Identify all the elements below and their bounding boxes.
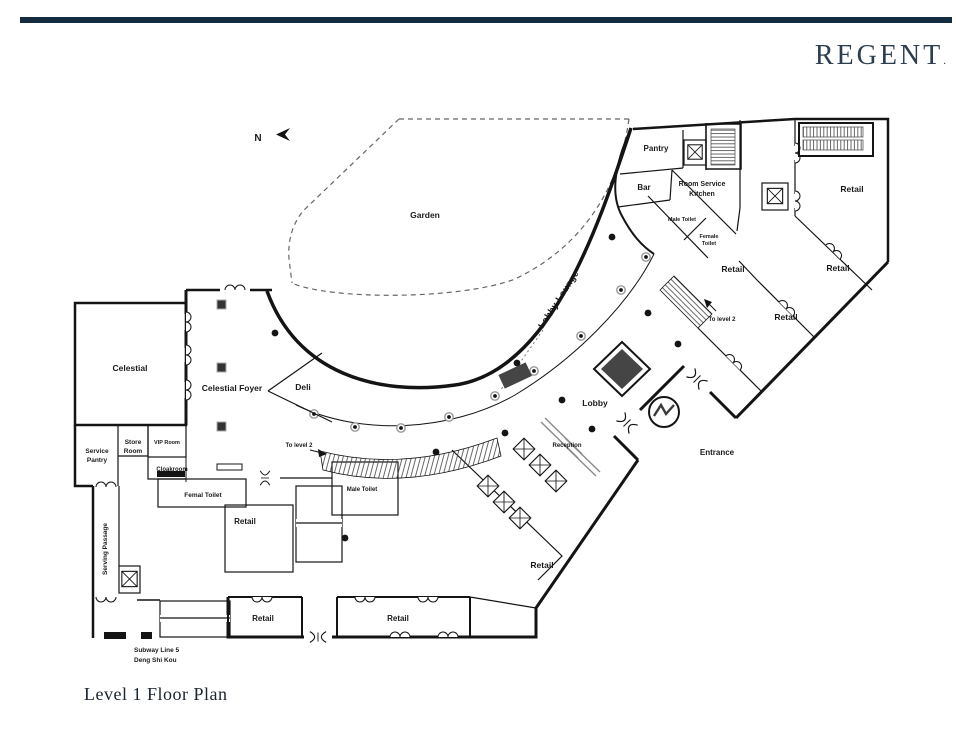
garden-wall-arc	[267, 128, 631, 388]
label-vip-room: VIP Room	[154, 440, 180, 446]
label-room-service-kitchen-2: Kitchen	[689, 191, 715, 198]
label-store-room-2: Room	[124, 448, 143, 455]
label-to-level2-right: To level 2	[709, 317, 737, 323]
label-celestial-foyer: Celestial Foyer	[202, 383, 263, 393]
label-retail-bottom-1: Retail	[252, 614, 274, 623]
elevator-icon-top	[684, 140, 706, 165]
stairs-icon-top	[706, 124, 741, 169]
room-labels: Garden Pantry Bar Room Service Kitchen M…	[85, 144, 863, 664]
label-bar: Bar	[637, 183, 650, 192]
label-lobby-lounge: Lobby Lounge	[536, 269, 581, 330]
label-subway-1: Subway Line 5	[134, 647, 180, 654]
garden-area	[267, 119, 631, 388]
label-female-toilet-2: Toilet	[702, 241, 716, 247]
label-retail-small: Retail	[234, 517, 256, 526]
label-cloakroom: Cloakroom	[156, 467, 187, 473]
label-celestial: Celestial	[113, 363, 148, 373]
entrance-door-icon	[616, 412, 637, 433]
elevator-icon-bottom-left	[122, 571, 137, 586]
label-store-room: Store	[125, 439, 142, 446]
revolving-door-icon-bottom	[310, 632, 326, 643]
foyer-columns	[217, 300, 226, 431]
floor-plan-page: REGENT. N	[0, 0, 956, 733]
compass-n-label: N	[254, 133, 261, 144]
label-subway-2: Deng Shi Kou	[134, 657, 177, 664]
escalator-icon-to-level2-center	[310, 438, 501, 478]
north-arrow-glyph	[276, 128, 290, 141]
entrance-door-icon	[686, 368, 707, 389]
label-reception: Reception	[552, 443, 581, 449]
label-serving-passage: Serving Passage	[102, 523, 109, 575]
revolving-door-leaf	[654, 405, 674, 416]
label-male-toilet-center: Male Toilet	[347, 487, 378, 493]
lobby-feature-diamond	[594, 342, 650, 396]
label-retail-right-1: Retail	[826, 263, 849, 273]
stairs-icon-center	[296, 486, 342, 562]
label-service-pantry-2: Pantry	[87, 457, 108, 464]
garden-dashed-boundary-left	[289, 119, 399, 283]
north-arrow-icon: N	[254, 128, 290, 144]
label-retail-right-3: Retail	[774, 312, 797, 322]
room-retail-small	[225, 505, 293, 572]
label-entrance: Entrance	[700, 448, 735, 457]
label-deli: Deli	[295, 382, 311, 392]
label-garden: Garden	[410, 210, 440, 220]
label-female-toilet: Female	[700, 234, 719, 240]
label-room-service-kitchen: Room Service	[679, 181, 726, 188]
center-walls	[158, 450, 562, 642]
label-retail-top-right: Retail	[840, 184, 863, 194]
label-lobby: Lobby	[582, 398, 608, 408]
escalator-icon-top-right	[799, 123, 873, 156]
label-retail-mid: Retail	[530, 560, 553, 570]
label-to-level2-center: To level 2	[286, 443, 314, 449]
floor-plan-svg: N	[0, 0, 956, 733]
label-femal-toilet: Femal Toilet	[184, 492, 222, 499]
label-retail-bottom-2: Retail	[387, 614, 409, 623]
label-service-pantry: Service	[85, 448, 109, 455]
page-title: Level 1 Floor Plan	[84, 684, 227, 705]
label-pantry: Pantry	[644, 144, 669, 153]
elevator-icon-right	[762, 183, 788, 210]
label-male-toilet-top: Male Toilet	[668, 217, 696, 223]
stairs-icon-subway	[160, 601, 230, 637]
label-retail-right-2: Retail	[721, 264, 744, 274]
